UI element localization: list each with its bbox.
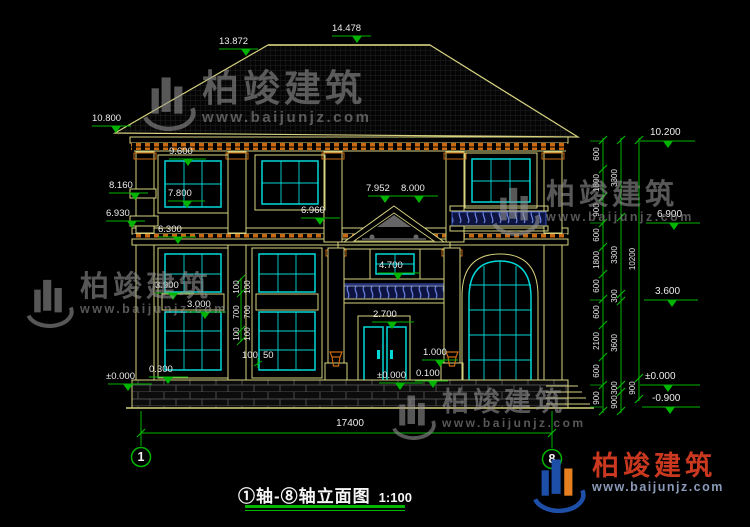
plinth [126,380,594,408]
chain-outer-0: 10200 [628,242,638,276]
pilasters [130,152,562,380]
level-0100: 0.100 [416,369,440,379]
vdim-100-bot: 100 [232,317,242,351]
level-6960: 6.960 [301,206,325,216]
level-6930: 6.930 [106,209,130,219]
chain-middle-3: 3600 [610,326,620,360]
level-3600: 3.600 [655,287,680,297]
level-zero-center: ±0.000 [377,371,406,381]
arched-window [462,254,538,388]
eave-cornice [130,137,568,151]
level-9600: 9.600 [169,147,193,157]
axis-bubble-1: 1 [132,450,150,464]
level-minus-0900: -0.900 [652,394,680,404]
level-10800: 10.800 [92,114,121,124]
level-0300: 0.300 [149,365,173,375]
level-zero-right: ±0.000 [645,372,676,382]
chain-middle-5: 900 [610,385,620,419]
vdim2-100-bot: 100 [243,317,253,351]
hip-roof [115,45,578,137]
chain-inner-7: 2100 [592,324,602,358]
chain-outer-1: 900 [628,371,638,405]
chain-middle-2: 300 [610,279,620,313]
title-underline-thick [245,505,405,508]
chain-middle-0: 3300 [610,161,620,195]
level-zero-left: ±0.000 [106,372,135,382]
axis-bubble-8: 8 [543,452,561,466]
chain-middle-1: 3300 [610,238,620,272]
drawing-title-text: ①轴-⑧轴立面图 [238,487,371,506]
level-13872: 13.872 [219,37,248,47]
title-underline-thin [245,510,405,511]
level-3000: 3.000 [187,300,211,310]
second-floor-windows [158,153,537,213]
hdim-100: 100 [242,351,258,361]
level-4700: 4.700 [379,261,403,271]
level-1000: 1.000 [423,348,447,358]
level-3900: 3.900 [155,281,179,291]
overall-width-dim: 17400 [322,419,378,429]
level-7800: 7.800 [168,189,192,199]
level-8000: 8.000 [401,184,425,194]
level-14478: 14.478 [332,24,361,34]
level-8160: 8.160 [109,181,133,191]
drawing-scale: 1:100 [379,490,412,505]
elevation-drawing-canvas: 13.872 14.478 10.800 8.160 6.930 9.600 7… [0,0,750,527]
right-balcony [450,206,548,231]
level-6900: 6.900 [657,210,682,220]
level-6300: 6.300 [158,225,182,235]
chain-inner-9: 900 [592,381,602,415]
level-7952: 7.952 [366,184,390,194]
level-2700: 2.700 [373,310,397,320]
level-10200: 10.200 [650,128,681,138]
hdim-50: 50 [263,351,274,361]
drawing-title: ①轴-⑧轴立面图1:100 [238,482,412,507]
